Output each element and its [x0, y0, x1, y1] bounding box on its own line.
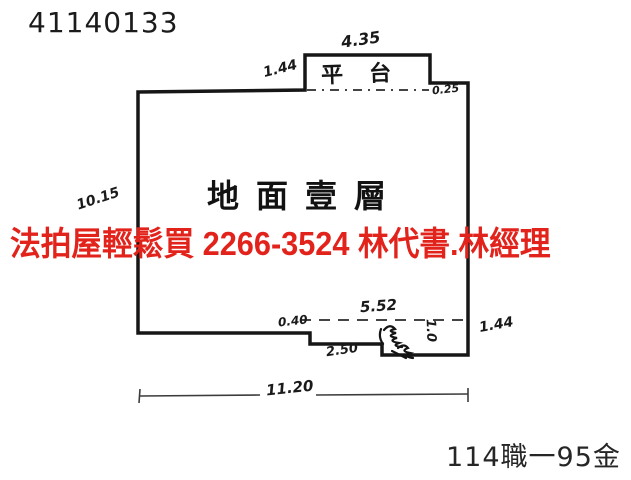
scanned-floor-plan-page: 41140133 地面壹層 平台 法拍屋輕鬆買 2266-3524 林代書.林經… — [0, 0, 631, 480]
dim-entry-small: 1.0 — [423, 319, 439, 343]
advertisement-watermark: 法拍屋輕鬆買 2266-3524 林代書.林經理 — [10, 217, 551, 265]
balcony-area-label: 平台 — [320, 54, 417, 89]
handwriting-scribbles — [380, 326, 413, 358]
dim-entry-recess-width: 5.52 — [359, 296, 397, 317]
floor-title-label: 地面壹層 — [207, 171, 403, 217]
case-reference-label: 114職一95金 — [446, 435, 621, 474]
document-number: 41140133 — [28, 6, 179, 39]
